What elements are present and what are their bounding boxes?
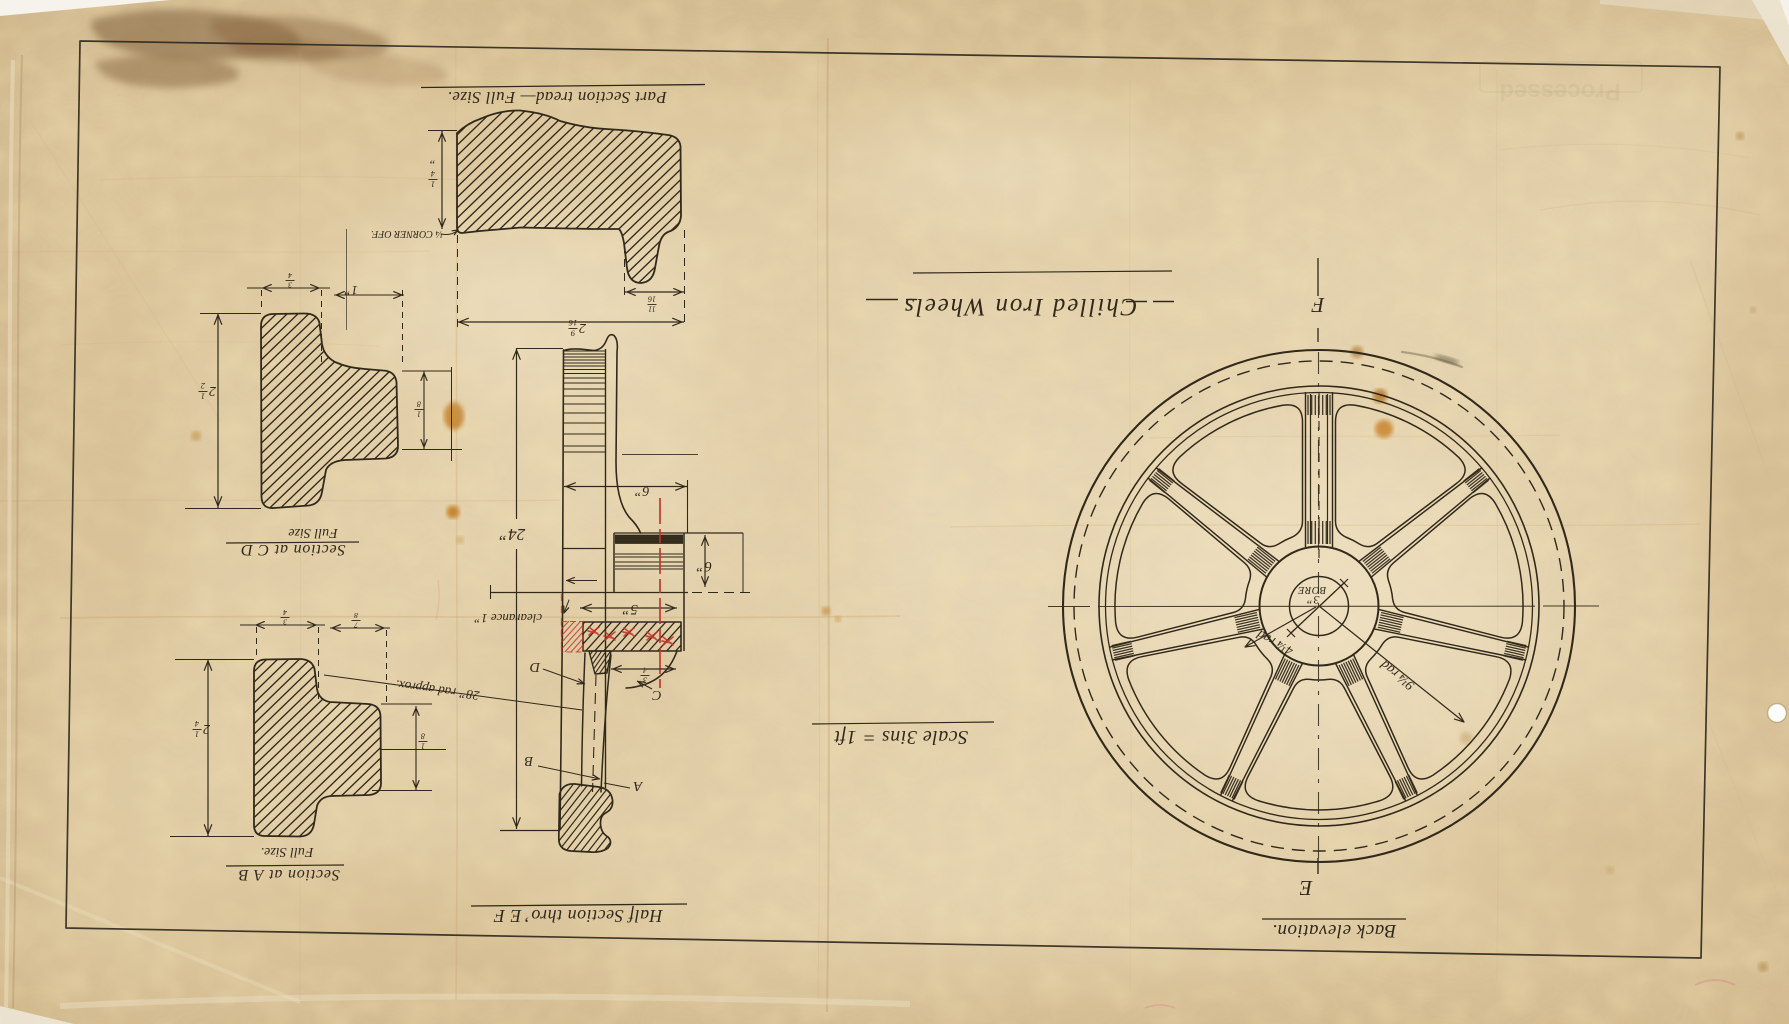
svg-text:4: 4 — [288, 271, 292, 280]
svg-text:Half Section thro’ E F: Half Section thro’ E F — [493, 906, 664, 926]
svg-text:Part Section tread— Full Size.: Part Section tread— Full Size. — [447, 88, 668, 107]
svg-text:4: 4 — [194, 719, 199, 729]
svg-text:Full Size: Full Size — [288, 525, 338, 540]
svg-text:¼ CORNER OFF.: ¼ CORNER OFF. — [371, 228, 443, 239]
svg-text:8: 8 — [354, 611, 358, 620]
svg-text:3”: 3” — [1306, 593, 1320, 607]
svg-text:2: 2 — [200, 381, 205, 391]
svg-text:11: 11 — [648, 305, 656, 314]
svg-text:1: 1 — [431, 180, 435, 190]
svg-text:1: 1 — [201, 392, 205, 402]
svg-text:D: D — [530, 659, 541, 674]
svg-text:1: 1 — [417, 410, 421, 419]
svg-text:24”: 24” — [499, 525, 525, 544]
svg-text:9: 9 — [570, 329, 575, 339]
svg-text:Back elevation.: Back elevation. — [1272, 920, 1397, 941]
svg-text:Scale 3ins = 1ft: Scale 3ins = 1ft — [834, 726, 968, 748]
svg-text:Section at C D: Section at C D — [241, 541, 346, 558]
svg-text:1: 1 — [195, 730, 199, 740]
svg-text:4: 4 — [430, 169, 435, 179]
svg-text:3: 3 — [643, 676, 648, 685]
svg-text:F: F — [1311, 293, 1325, 317]
svg-text:3: 3 — [283, 618, 288, 627]
svg-text:Full Size.: Full Size. — [261, 844, 315, 859]
svg-text:6”: 6” — [696, 558, 712, 574]
svg-text:E: E — [1299, 876, 1313, 900]
svg-text:8: 8 — [421, 731, 425, 740]
svg-text:3: 3 — [288, 281, 293, 290]
svg-text:2: 2 — [579, 320, 586, 335]
svg-text:16: 16 — [568, 318, 577, 328]
svg-text:5”: 5” — [622, 601, 638, 617]
svg-text:8: 8 — [417, 399, 421, 408]
svg-text:4: 4 — [283, 608, 287, 617]
svg-text:6”: 6” — [634, 483, 649, 498]
svg-text:Section at A B: Section at A B — [238, 866, 340, 883]
svg-text:C: C — [652, 687, 662, 702]
svg-text:Chilled Iron Wheels: Chilled Iron Wheels — [903, 293, 1138, 320]
svg-text:1: 1 — [421, 742, 425, 751]
svg-text:clearance 1”: clearance 1” — [474, 611, 542, 626]
svg-text:B: B — [524, 753, 533, 768]
svg-text:1”: 1” — [344, 283, 358, 298]
svg-text:2: 2 — [209, 383, 216, 398]
svg-text:A: A — [633, 778, 643, 793]
svg-text:16: 16 — [648, 294, 656, 303]
svg-text:4: 4 — [643, 665, 647, 674]
svg-text:2: 2 — [203, 721, 210, 736]
svg-text:”: ” — [429, 153, 436, 167]
